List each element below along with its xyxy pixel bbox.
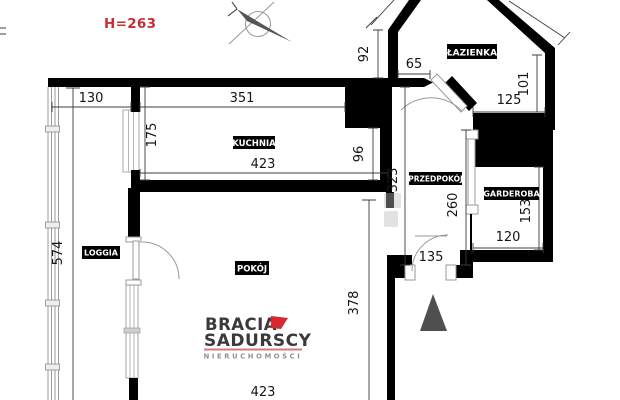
door-jamb (466, 205, 478, 214)
dim-kuchnia-bottom: 423 (251, 157, 276, 172)
door-jamb (126, 280, 141, 285)
door-leaf (133, 241, 139, 279)
room-label-kuchnia: KUCHNIA (232, 136, 276, 149)
railing-post (46, 222, 60, 228)
room-label-przedpokoj: PRZEDPOKÓJ (408, 172, 463, 185)
wall-loggia-upper (131, 87, 140, 112)
room-label-garderoba: GARDEROBA (483, 187, 540, 200)
dim-bath-left: 92 (357, 46, 372, 63)
dim-kuchnia-left: 175 (145, 123, 160, 148)
wall-kitchen-bottom (131, 180, 382, 192)
wall-room-loggia (128, 188, 140, 240)
room-label-lazienka-text: ŁAZIENKA (446, 49, 497, 59)
door-leaf (468, 139, 475, 205)
dim-loggia-width: 130 (79, 91, 104, 106)
room-label-loggia: LOGGIA (82, 246, 120, 259)
window-rail (124, 328, 140, 333)
logo-line2: SADURSCY (204, 331, 312, 351)
room-label-pokoj-text: POKÓJ (237, 263, 267, 275)
room-label-kuchnia-text: KUCHNIA (232, 139, 276, 149)
wall-room-loggia-lower (129, 378, 138, 400)
dim-pokoj-bottom: 423 (251, 385, 276, 400)
railing-post (46, 126, 60, 132)
room-label-przedpokoj-text: PRZEDPOKÓJ (408, 175, 463, 184)
room-label-loggia-text: LOGGIA (84, 249, 119, 258)
dim-garderoba-right: 153 (519, 199, 534, 224)
logo-tagline: NIERUCHOMOŚCI (204, 352, 303, 361)
room-label-pokoj: POKÓJ (235, 261, 269, 275)
height-note: H=263 (104, 16, 156, 32)
dim-garderoba-bottom: 120 (496, 230, 521, 245)
dim-kuchnia-right: 96 (352, 146, 367, 163)
door-jamb (405, 265, 415, 280)
kitchen-loggia-window (123, 110, 139, 172)
dim-przedpokoj: 323 (386, 168, 401, 193)
floor-plan: 130 351 175 423 92 65 96 323 101 125 260… (0, 0, 620, 400)
railing-post (46, 300, 60, 306)
door-jamb (466, 130, 478, 139)
floor-plan-svg: 130 351 175 423 92 65 96 323 101 125 260… (0, 0, 620, 400)
dim-kuchnia-top: 351 (230, 91, 255, 106)
dim-bath-bottom: 125 (497, 93, 522, 108)
room-label-lazienka: ŁAZIENKA (446, 44, 497, 59)
railing-post (46, 364, 60, 370)
room-loggia-window (124, 284, 140, 378)
dim-przedpokoj-right: 260 (446, 193, 461, 218)
dim-entry-door: 135 (419, 250, 444, 265)
wall-loggia-mid (131, 170, 140, 182)
dim-loggia-height: 574 (51, 241, 66, 266)
door-jamb (446, 265, 456, 280)
room-label-garderoba-text: GARDEROBA (483, 190, 540, 199)
dim-bath-wall: 65 (406, 57, 423, 72)
dim-pokoj-right: 378 (347, 291, 362, 316)
